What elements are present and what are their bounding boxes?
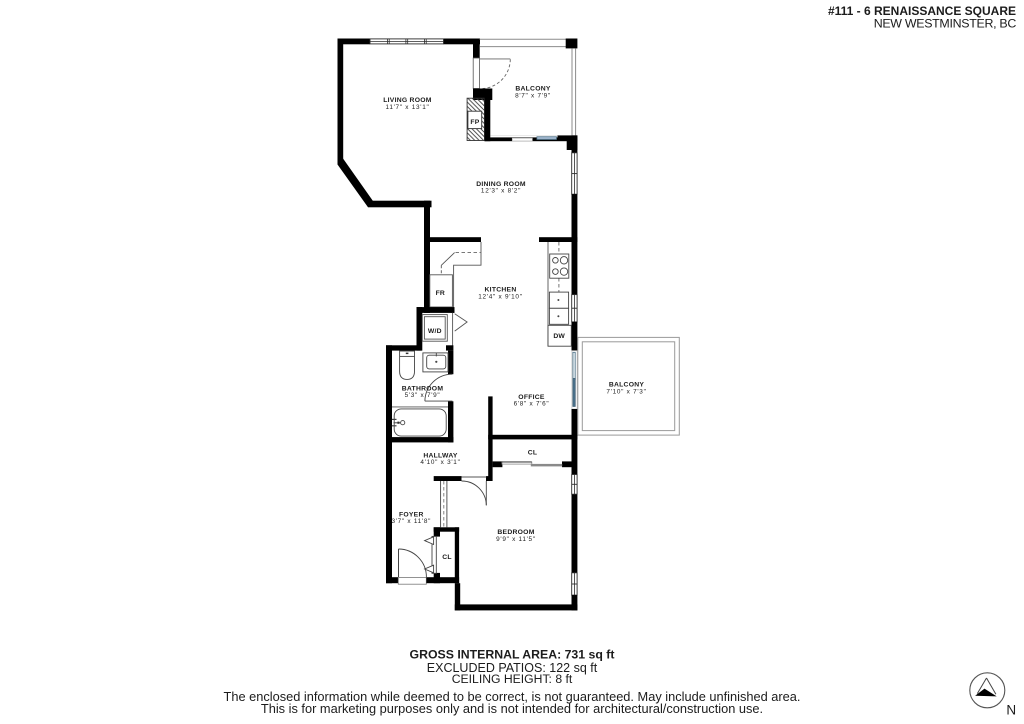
svg-text:4'10" x 3'1": 4'10" x 3'1" xyxy=(420,459,460,466)
svg-text:CL: CL xyxy=(442,554,452,561)
svg-text:12'3" x 8'2": 12'3" x 8'2" xyxy=(481,187,521,194)
svg-text:N: N xyxy=(1006,702,1016,717)
svg-text:CEILING HEIGHT: 8 ft: CEILING HEIGHT: 8 ft xyxy=(452,672,573,686)
svg-text:GROSS INTERNAL AREA: 731 sq ft: GROSS INTERNAL AREA: 731 sq ft xyxy=(410,647,615,661)
svg-text:6'8" x 7'6": 6'8" x 7'6" xyxy=(514,401,550,408)
svg-text:3'7" x 11'8": 3'7" x 11'8" xyxy=(391,518,431,525)
svg-text:BALCONY: BALCONY xyxy=(515,86,551,93)
svg-text:DW: DW xyxy=(553,333,565,340)
svg-text:LIVING ROOM: LIVING ROOM xyxy=(383,97,432,104)
svg-text:12'4" x 9'10": 12'4" x 9'10" xyxy=(478,293,522,300)
svg-text:BEDROOM: BEDROOM xyxy=(497,529,534,536)
svg-text:9'9" x 11'5": 9'9" x 11'5" xyxy=(496,536,536,543)
svg-text:CL: CL xyxy=(528,450,538,457)
svg-text:NEW WESTMINSTER, BC: NEW WESTMINSTER, BC xyxy=(874,17,1017,31)
svg-text:FR: FR xyxy=(436,290,445,297)
svg-text:11'7" x 13'1": 11'7" x 13'1" xyxy=(386,104,430,111)
svg-text:8'7" x 7'9": 8'7" x 7'9" xyxy=(515,93,551,100)
svg-text:FP: FP xyxy=(470,119,479,126)
svg-text:7'10" x 7'3": 7'10" x 7'3" xyxy=(606,388,646,395)
svg-text:5'3" x 7'9": 5'3" x 7'9" xyxy=(405,392,441,399)
svg-text:KITCHEN: KITCHEN xyxy=(485,286,517,293)
svg-text:This is for marketing purposes: This is for marketing purposes only and … xyxy=(261,701,763,716)
svg-text:W/D: W/D xyxy=(428,328,442,335)
